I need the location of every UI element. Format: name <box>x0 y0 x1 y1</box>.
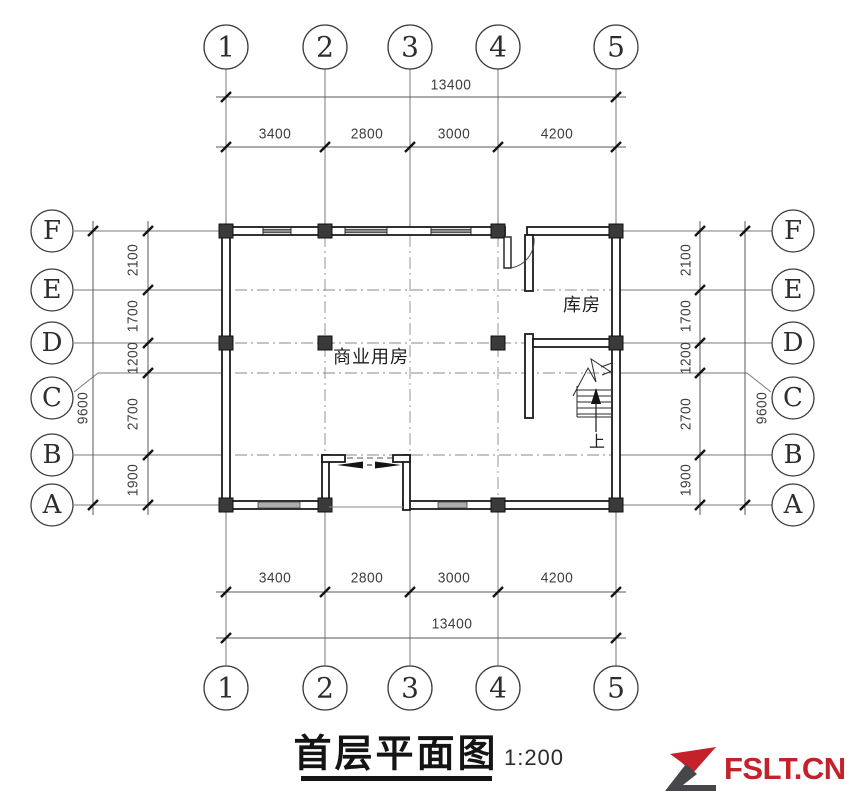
room-label-commercial: 商业用房 <box>333 343 409 369</box>
dim-bottom-seg-3: 3000 <box>438 570 471 587</box>
grid-bubble-right-a: A <box>784 490 803 520</box>
grid-bubble-right-d: D <box>783 328 804 358</box>
dim-right-seg-1: 2100 <box>678 244 695 277</box>
grid-bubble-bottom-1: 1 <box>217 672 235 705</box>
grid-bubble-left-c: C <box>42 383 62 413</box>
dim-top-total: 13400 <box>431 77 472 94</box>
dim-left-seg-4: 2700 <box>125 398 142 431</box>
grid-bubble-left-e: E <box>43 275 62 305</box>
center-lines <box>235 235 612 501</box>
grid-bubble-bottom-2: 2 <box>316 672 334 705</box>
dimension-lines <box>93 97 745 638</box>
grid-bubble-bottom-3: 3 <box>401 672 419 705</box>
grid-bubble-top-1: 1 <box>217 31 235 64</box>
dim-left-seg-3: 1200 <box>125 342 142 375</box>
grid-lines <box>74 69 772 666</box>
title-underline <box>301 776 492 781</box>
dim-right-seg-4: 2700 <box>678 398 695 431</box>
room-label-storage: 库房 <box>563 291 601 317</box>
grid-bubble-bottom-4: 4 <box>489 672 507 705</box>
grid-bubble-left-b: B <box>42 440 61 470</box>
dim-top-seg-2: 2800 <box>351 126 384 143</box>
grid-bubble-top-2: 2 <box>316 31 334 64</box>
columns <box>219 224 623 512</box>
dim-right-total: 9600 <box>754 392 771 425</box>
dim-right-seg-3: 1200 <box>678 342 695 375</box>
grid-bubble-top-5: 5 <box>607 31 625 64</box>
dim-left-total: 9600 <box>75 392 92 425</box>
dim-right-seg-5: 1900 <box>678 464 695 497</box>
grid-bubble-top-3: 3 <box>401 31 419 64</box>
grid-bubble-top-4: 4 <box>489 31 507 64</box>
dim-left-seg-1: 2100 <box>125 244 142 277</box>
drawing-scale: 1:200 <box>504 745 564 771</box>
dim-top-seg-1: 3400 <box>259 126 292 143</box>
dim-bottom-seg-1: 3400 <box>259 570 292 587</box>
dim-left-seg-2: 1700 <box>125 300 142 333</box>
grid-bubble-right-e: E <box>784 275 803 305</box>
plan-walls <box>222 227 620 510</box>
dim-bottom-seg-2: 2800 <box>351 570 384 587</box>
grid-bubble-bottom-5: 5 <box>607 672 625 705</box>
grid-bubble-left-d: D <box>42 328 63 358</box>
drawing-title: 首层平面图 <box>293 723 498 778</box>
grid-bubble-right-b: B <box>783 440 802 470</box>
stair <box>573 359 612 432</box>
grid-bubble-left-f: F <box>43 216 61 246</box>
floor-plan-sheet: 1 2 3 4 5 1 2 3 4 5 F E D C B A F E D C … <box>0 0 847 797</box>
dim-bottom-seg-4: 4200 <box>541 570 574 587</box>
stair-up-label: 上 <box>589 428 605 452</box>
grid-bubble-left-a: A <box>43 490 62 520</box>
dim-top-seg-3: 3000 <box>438 126 471 143</box>
grid-bubble-right-c: C <box>783 383 803 413</box>
dim-bottom-total: 13400 <box>432 616 473 633</box>
fslt-logo-icon <box>665 747 716 791</box>
fslt-logo-text: FSLT.CN <box>724 751 846 787</box>
dim-right-seg-2: 1700 <box>678 300 695 333</box>
dim-top-seg-4: 4200 <box>541 126 574 143</box>
tick-marks <box>88 92 750 643</box>
dim-left-seg-5: 1900 <box>125 464 142 497</box>
grid-bubble-right-f: F <box>784 216 802 246</box>
entrance-sliding-door <box>329 458 403 507</box>
